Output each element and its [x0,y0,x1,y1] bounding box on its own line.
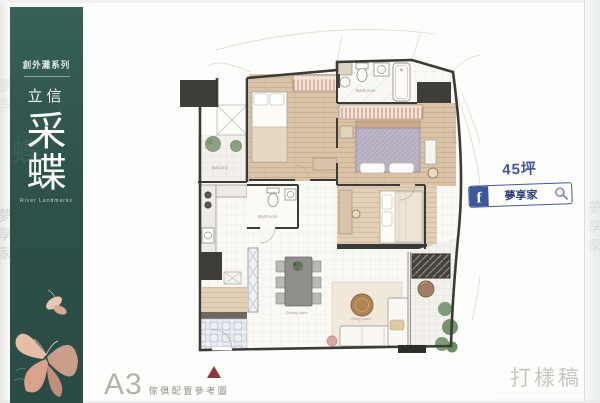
proof-draft-label: 打樣稿 [510,362,582,392]
large-butterfly-icon [16,334,78,397]
cabinet-x-box [224,272,241,284]
toilet-icon-2 [267,188,279,207]
bathroom1-label: Bathroom [356,88,376,93]
facebook-icon: f [469,186,489,207]
toilet-icon-1 [356,63,368,82]
master-stool [428,168,438,178]
dining-set [276,257,321,306]
plan-caption: 傢俱配置參考圖 [149,384,230,397]
sparkle-lines [14,368,26,381]
bedroom3-stool [352,210,360,218]
floor-plan: Balcony [100,8,480,388]
unit-area-label: 45坪 [467,156,572,181]
sidebar-ghost-glyph: 蝶 [12,127,42,171]
entry-column [398,345,426,353]
facebook-search-bar: f 夢享家 [468,182,573,208]
bedroom2-wardrobe [293,75,337,91]
entry-foyer-floor [200,319,247,350]
master-wardrobe [339,105,423,119]
bedroom3-bottom-wall [337,244,427,249]
area-annotation: 45坪 f 夢享家 [467,156,573,208]
developer-name: 立信 [10,85,83,106]
master-bench [425,140,436,164]
small-butterfly-icon [44,290,68,317]
bathtub-icon [393,63,410,101]
living-stool [327,336,337,346]
north-arrow-icon [207,366,221,378]
plan-code: A3 [104,368,143,402]
glass-cabinet [248,248,258,312]
sink-icon-2 [285,189,296,200]
project-subtitle-en: River Landmarks [10,198,83,204]
facebook-page-name: 夢享家 [488,186,554,204]
entry-threshold-strip [200,312,247,319]
column-top-left [180,80,217,107]
bathroom2: Bathroom [247,185,298,228]
dining-label: Dining room [286,310,308,315]
butterfly-artwork [10,273,83,403]
bathroom2-label: Bathroom [258,214,278,219]
fine-print: ········································… [496,390,588,395]
bedroom2-dresser [313,158,337,170]
series-label: 創外灘系列 [10,59,83,72]
living-label: Living room [350,316,371,321]
bedroom3-bed [380,191,423,243]
series-divider [24,76,70,77]
washbasin-cabinet [336,62,352,88]
brochure-page: 夢享 夢享家 夢享家 蝶 創外灘系列 立信 采 蝶 River Landmark… [0,0,600,403]
master-nightstand [340,126,353,138]
storage-column [200,252,222,280]
page-bottom-edge [0,399,600,403]
page-top-edge [0,0,600,3]
page-fold-edge [584,0,600,403]
pantry-floor [202,287,247,312]
sink-icon-1 [374,63,389,76]
bedroom3-dresser [339,190,352,234]
master-bed [356,121,420,173]
brand-sidebar: 蝶 創外灘系列 立信 采 蝶 River Landmarks [10,7,83,403]
balcony-top-label: Balcony [212,165,229,170]
column-top-right [417,82,451,103]
magnifier-icon [553,185,570,202]
bedroom2-bed [252,92,287,162]
coffee-table [351,294,373,316]
